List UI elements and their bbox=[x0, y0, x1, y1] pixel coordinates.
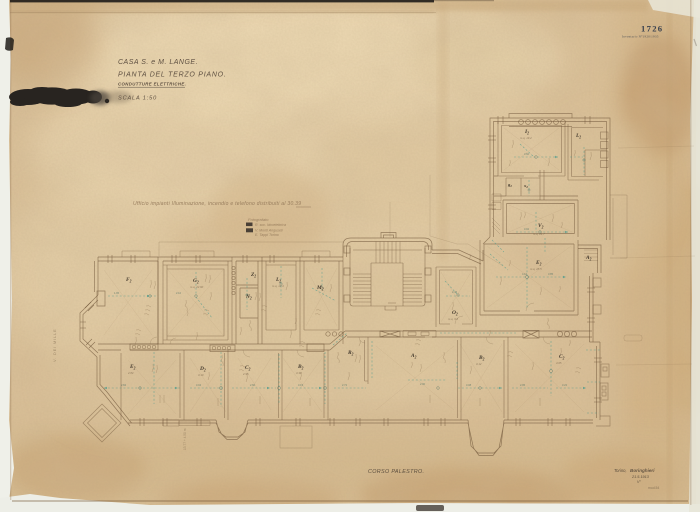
svg-text:m.q. 9.6: m.q. 9.6 bbox=[448, 317, 459, 321]
svg-text:4.10: 4.10 bbox=[522, 272, 528, 276]
svg-text:2.45: 2.45 bbox=[452, 290, 458, 294]
svg-text:2.72: 2.72 bbox=[342, 383, 348, 387]
svg-text:m.q. 28.5: m.q. 28.5 bbox=[530, 267, 542, 271]
svg-text:3.15: 3.15 bbox=[298, 383, 304, 387]
svg-text:3.85: 3.85 bbox=[548, 272, 554, 276]
svg-text:2.90: 2.90 bbox=[420, 382, 426, 386]
svg-text:Fotografato: Fotografato bbox=[248, 217, 269, 222]
svg-text:Boringhieri: Boringhieri bbox=[630, 468, 655, 473]
svg-text:1726: 1726 bbox=[641, 24, 663, 34]
svg-text:3.22: 3.22 bbox=[562, 383, 568, 387]
svg-text:E. Tappi Torino: E. Tappi Torino bbox=[255, 233, 279, 237]
svg-text:21.5.1913: 21.5.1913 bbox=[631, 475, 650, 479]
svg-text:m.q. 19.2: m.q. 19.2 bbox=[520, 136, 532, 140]
svg-text:R. soc. Idroelettrica: R. soc. Idroelettrica bbox=[255, 223, 286, 227]
svg-text:CONDUTTURE ELETTRICHE.: CONDUTTURE ELETTRICHE. bbox=[118, 82, 186, 87]
svg-text:m.q. 21.7: m.q. 21.7 bbox=[533, 232, 545, 236]
svg-text:CASA S. e M. LANGE.: CASA S. e M. LANGE. bbox=[118, 59, 198, 66]
svg-text:2.95: 2.95 bbox=[242, 372, 249, 376]
svg-text:Inventario N°1920/1935: Inventario N°1920/1935 bbox=[622, 35, 659, 39]
svg-text:3.04: 3.04 bbox=[196, 383, 202, 387]
svg-text:3.08: 3.08 bbox=[466, 383, 472, 387]
svg-text:3.10: 3.10 bbox=[198, 373, 204, 377]
svg-text:V. Monti Anguseli: V. Monti Anguseli bbox=[255, 229, 283, 233]
svg-text:V. DEI MILLE: V. DEI MILLE bbox=[52, 329, 57, 362]
svg-text:m.q. 12.3: m.q. 12.3 bbox=[272, 284, 284, 288]
svg-text:Ufficio impianti Illuminazione: Ufficio impianti Illuminazione, incendio… bbox=[133, 201, 301, 207]
svg-text:Torino,: Torino, bbox=[614, 468, 627, 473]
svg-text:SCALA 1:50: SCALA 1:50 bbox=[118, 96, 157, 102]
svg-text:2.60: 2.60 bbox=[250, 383, 256, 387]
svg-text:m.q. 22.60: m.q. 22.60 bbox=[190, 285, 204, 289]
svg-text:CORSO PALESTRO.: CORSO PALESTRO. bbox=[368, 469, 424, 475]
svg-text:mod.54: mod.54 bbox=[648, 486, 659, 490]
svg-text:3.30: 3.30 bbox=[296, 371, 302, 375]
svg-text:V°: V° bbox=[637, 480, 641, 484]
svg-text:3.12: 3.12 bbox=[476, 362, 482, 366]
svg-text:2.84: 2.84 bbox=[127, 371, 134, 375]
svg-text:3.60: 3.60 bbox=[524, 152, 530, 156]
svg-text:2.84: 2.84 bbox=[121, 383, 127, 387]
svg-text:13.77 + 4.50 m: 13.77 + 4.50 m bbox=[183, 428, 187, 450]
svg-text:2.10: 2.10 bbox=[176, 291, 182, 295]
svg-text:4.05: 4.05 bbox=[556, 361, 562, 365]
svg-text:2.95: 2.95 bbox=[520, 383, 526, 387]
svg-text:PIANTA DEL TERZO PIANO.: PIANTA DEL TERZO PIANO. bbox=[118, 72, 227, 79]
svg-text:3.92: 3.92 bbox=[524, 227, 530, 231]
svg-text:1.95: 1.95 bbox=[114, 291, 120, 295]
